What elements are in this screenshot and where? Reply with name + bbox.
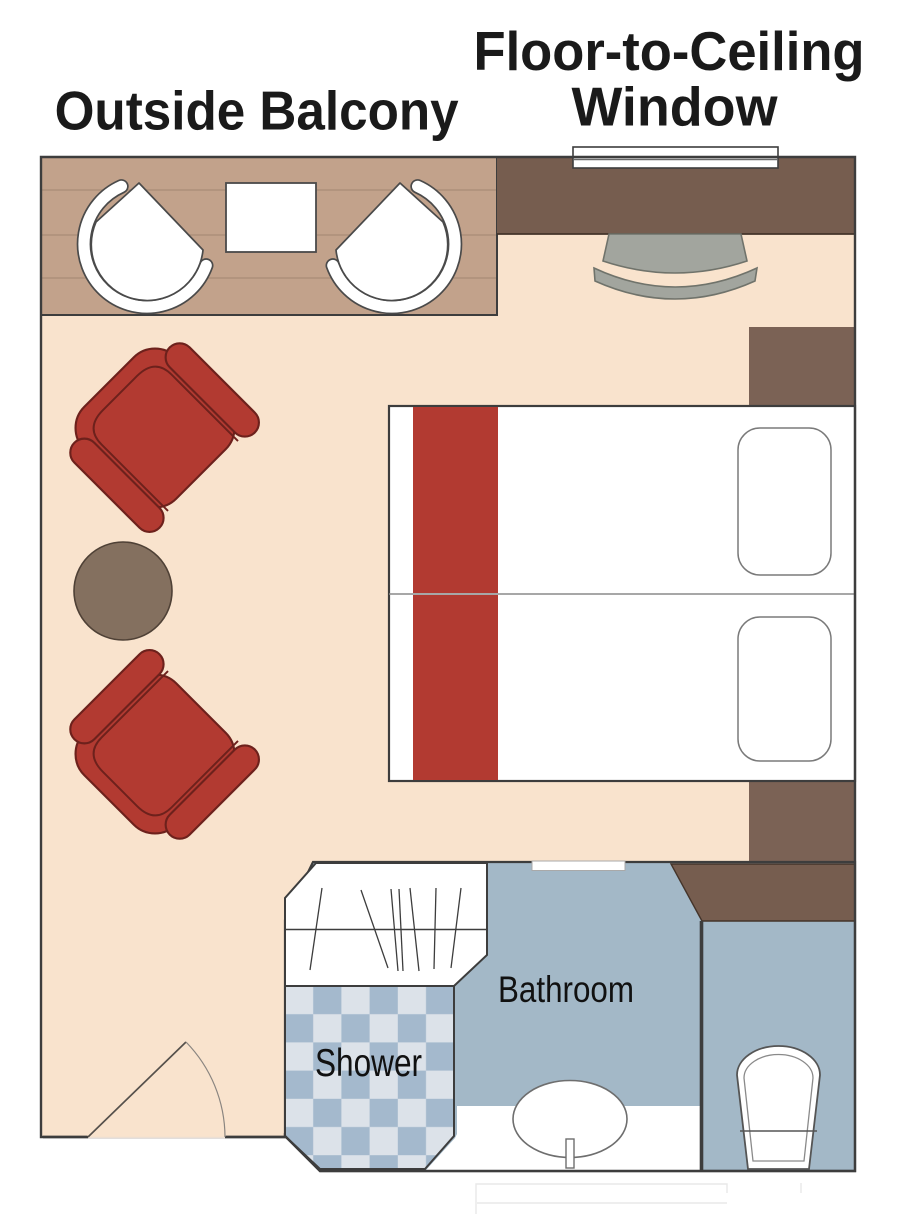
svg-text:Shower: Shower (315, 1042, 422, 1085)
svg-text:Floor-to-Ceiling: Floor-to-Ceiling (474, 20, 865, 82)
svg-text:Window: Window (572, 76, 778, 138)
svg-text:Outside Balcony: Outside Balcony (55, 80, 459, 142)
svg-text:Bathroom: Bathroom (498, 969, 634, 1010)
